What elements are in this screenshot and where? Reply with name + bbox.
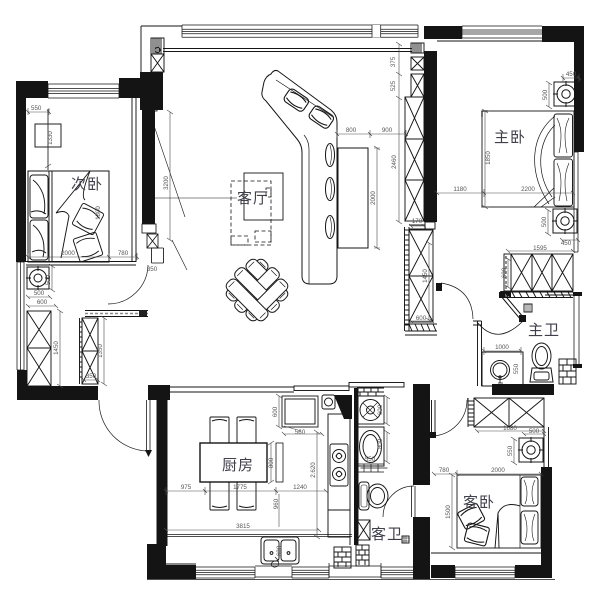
- svg-text:客卧: 客卧: [463, 494, 495, 511]
- svg-text:1800: 1800: [95, 206, 102, 220]
- svg-text:厨房: 厨房: [222, 457, 254, 474]
- svg-text:客厅: 客厅: [237, 190, 269, 207]
- svg-text:600: 600: [501, 267, 508, 278]
- svg-text:900: 900: [382, 127, 393, 134]
- svg-text:主卫: 主卫: [528, 322, 560, 339]
- svg-text:500: 500: [529, 428, 540, 435]
- svg-text:主卧: 主卧: [494, 129, 526, 146]
- svg-text:560: 560: [295, 429, 306, 436]
- svg-text:500: 500: [541, 216, 548, 227]
- svg-text:次卧: 次卧: [71, 176, 103, 193]
- svg-text:375: 375: [390, 56, 397, 67]
- svg-text:2.620: 2.620: [310, 462, 317, 478]
- svg-text:975: 975: [181, 484, 192, 491]
- svg-text:350: 350: [147, 266, 158, 273]
- svg-text:550: 550: [507, 445, 514, 456]
- svg-text:1775: 1775: [233, 484, 247, 491]
- svg-text:2000: 2000: [370, 191, 377, 205]
- svg-text:500: 500: [34, 290, 45, 297]
- svg-text:1330: 1330: [47, 131, 54, 145]
- svg-text:2200: 2200: [521, 186, 535, 193]
- svg-text:450: 450: [561, 240, 572, 247]
- svg-text:525: 525: [390, 80, 397, 91]
- svg-text:780: 780: [439, 467, 450, 474]
- svg-text:1595: 1595: [533, 245, 547, 252]
- svg-text:2000: 2000: [491, 467, 505, 474]
- svg-text:600: 600: [377, 404, 384, 415]
- svg-text:550: 550: [365, 456, 376, 463]
- svg-text:600: 600: [37, 299, 48, 306]
- svg-text:1350: 1350: [97, 344, 104, 358]
- svg-text:800: 800: [346, 127, 357, 134]
- svg-text:1850: 1850: [485, 151, 492, 165]
- svg-text:1450: 1450: [422, 269, 429, 283]
- svg-text:3200: 3200: [163, 176, 170, 190]
- svg-text:600: 600: [276, 545, 283, 556]
- svg-text:450: 450: [566, 71, 577, 78]
- svg-text:1680: 1680: [503, 425, 517, 432]
- svg-text:600: 600: [272, 406, 279, 417]
- svg-text:2460: 2460: [391, 155, 398, 169]
- svg-text:3815: 3815: [236, 523, 250, 530]
- svg-text:170: 170: [412, 218, 423, 225]
- svg-text:1000: 1000: [495, 344, 509, 351]
- svg-text:800: 800: [377, 438, 384, 449]
- svg-text:550: 550: [513, 363, 520, 374]
- svg-text:550: 550: [31, 105, 42, 112]
- svg-text:780: 780: [118, 250, 129, 257]
- svg-text:500: 500: [45, 274, 52, 285]
- svg-text:1500: 1500: [445, 505, 452, 519]
- svg-text:350: 350: [86, 373, 97, 380]
- svg-text:800: 800: [268, 457, 275, 468]
- svg-text:1450: 1450: [53, 341, 60, 355]
- svg-text:1180: 1180: [453, 186, 467, 193]
- svg-text:600: 600: [416, 315, 427, 322]
- svg-text:客卫: 客卫: [371, 526, 403, 543]
- svg-text:2000: 2000: [61, 250, 75, 257]
- svg-text:1240: 1240: [293, 484, 307, 491]
- svg-text:960: 960: [273, 498, 280, 509]
- svg-text:500: 500: [542, 89, 549, 100]
